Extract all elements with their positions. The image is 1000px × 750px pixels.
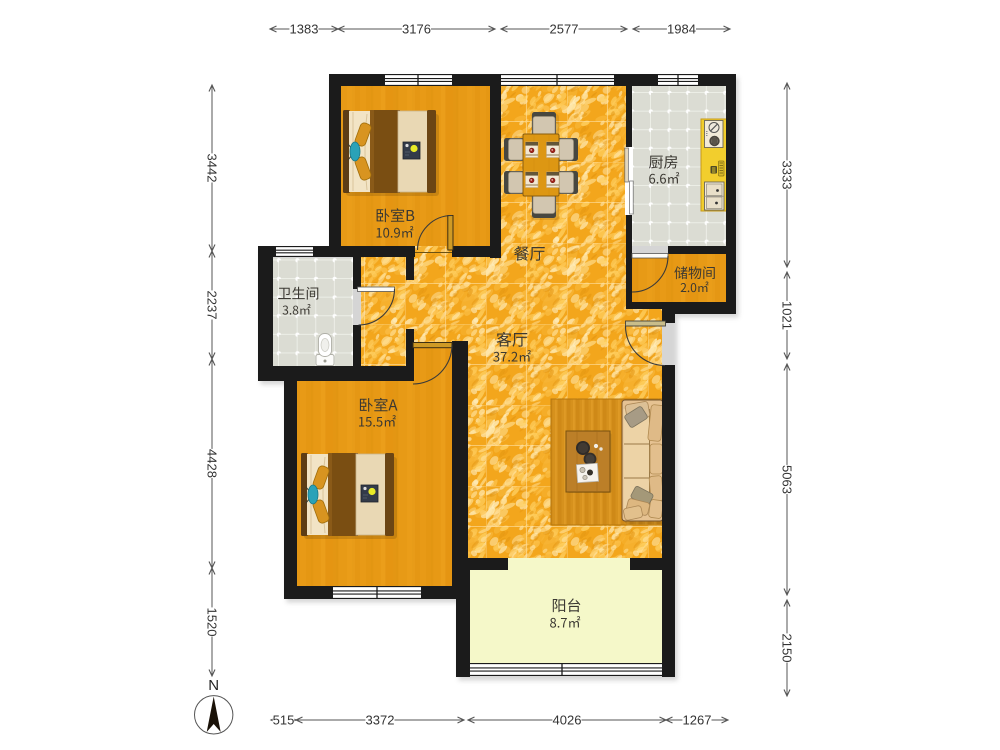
svg-text:4428: 4428 xyxy=(204,449,219,478)
svg-text:4026: 4026 xyxy=(553,713,582,728)
svg-text:N: N xyxy=(208,677,219,694)
svg-text:5063: 5063 xyxy=(779,465,794,494)
svg-text:3333: 3333 xyxy=(779,161,794,190)
svg-text:3176: 3176 xyxy=(402,22,431,37)
svg-text:3442: 3442 xyxy=(204,154,219,183)
svg-text:2237: 2237 xyxy=(204,291,219,320)
svg-text:1984: 1984 xyxy=(667,22,696,37)
svg-text:2150: 2150 xyxy=(779,634,794,663)
svg-text:1267: 1267 xyxy=(683,713,712,728)
svg-text:2577: 2577 xyxy=(550,22,579,37)
svg-text:3372: 3372 xyxy=(366,713,395,728)
svg-text:1383: 1383 xyxy=(290,22,319,37)
svg-text:1520: 1520 xyxy=(204,608,219,637)
svg-text:1021: 1021 xyxy=(779,301,794,330)
svg-text:515: 515 xyxy=(273,713,295,728)
